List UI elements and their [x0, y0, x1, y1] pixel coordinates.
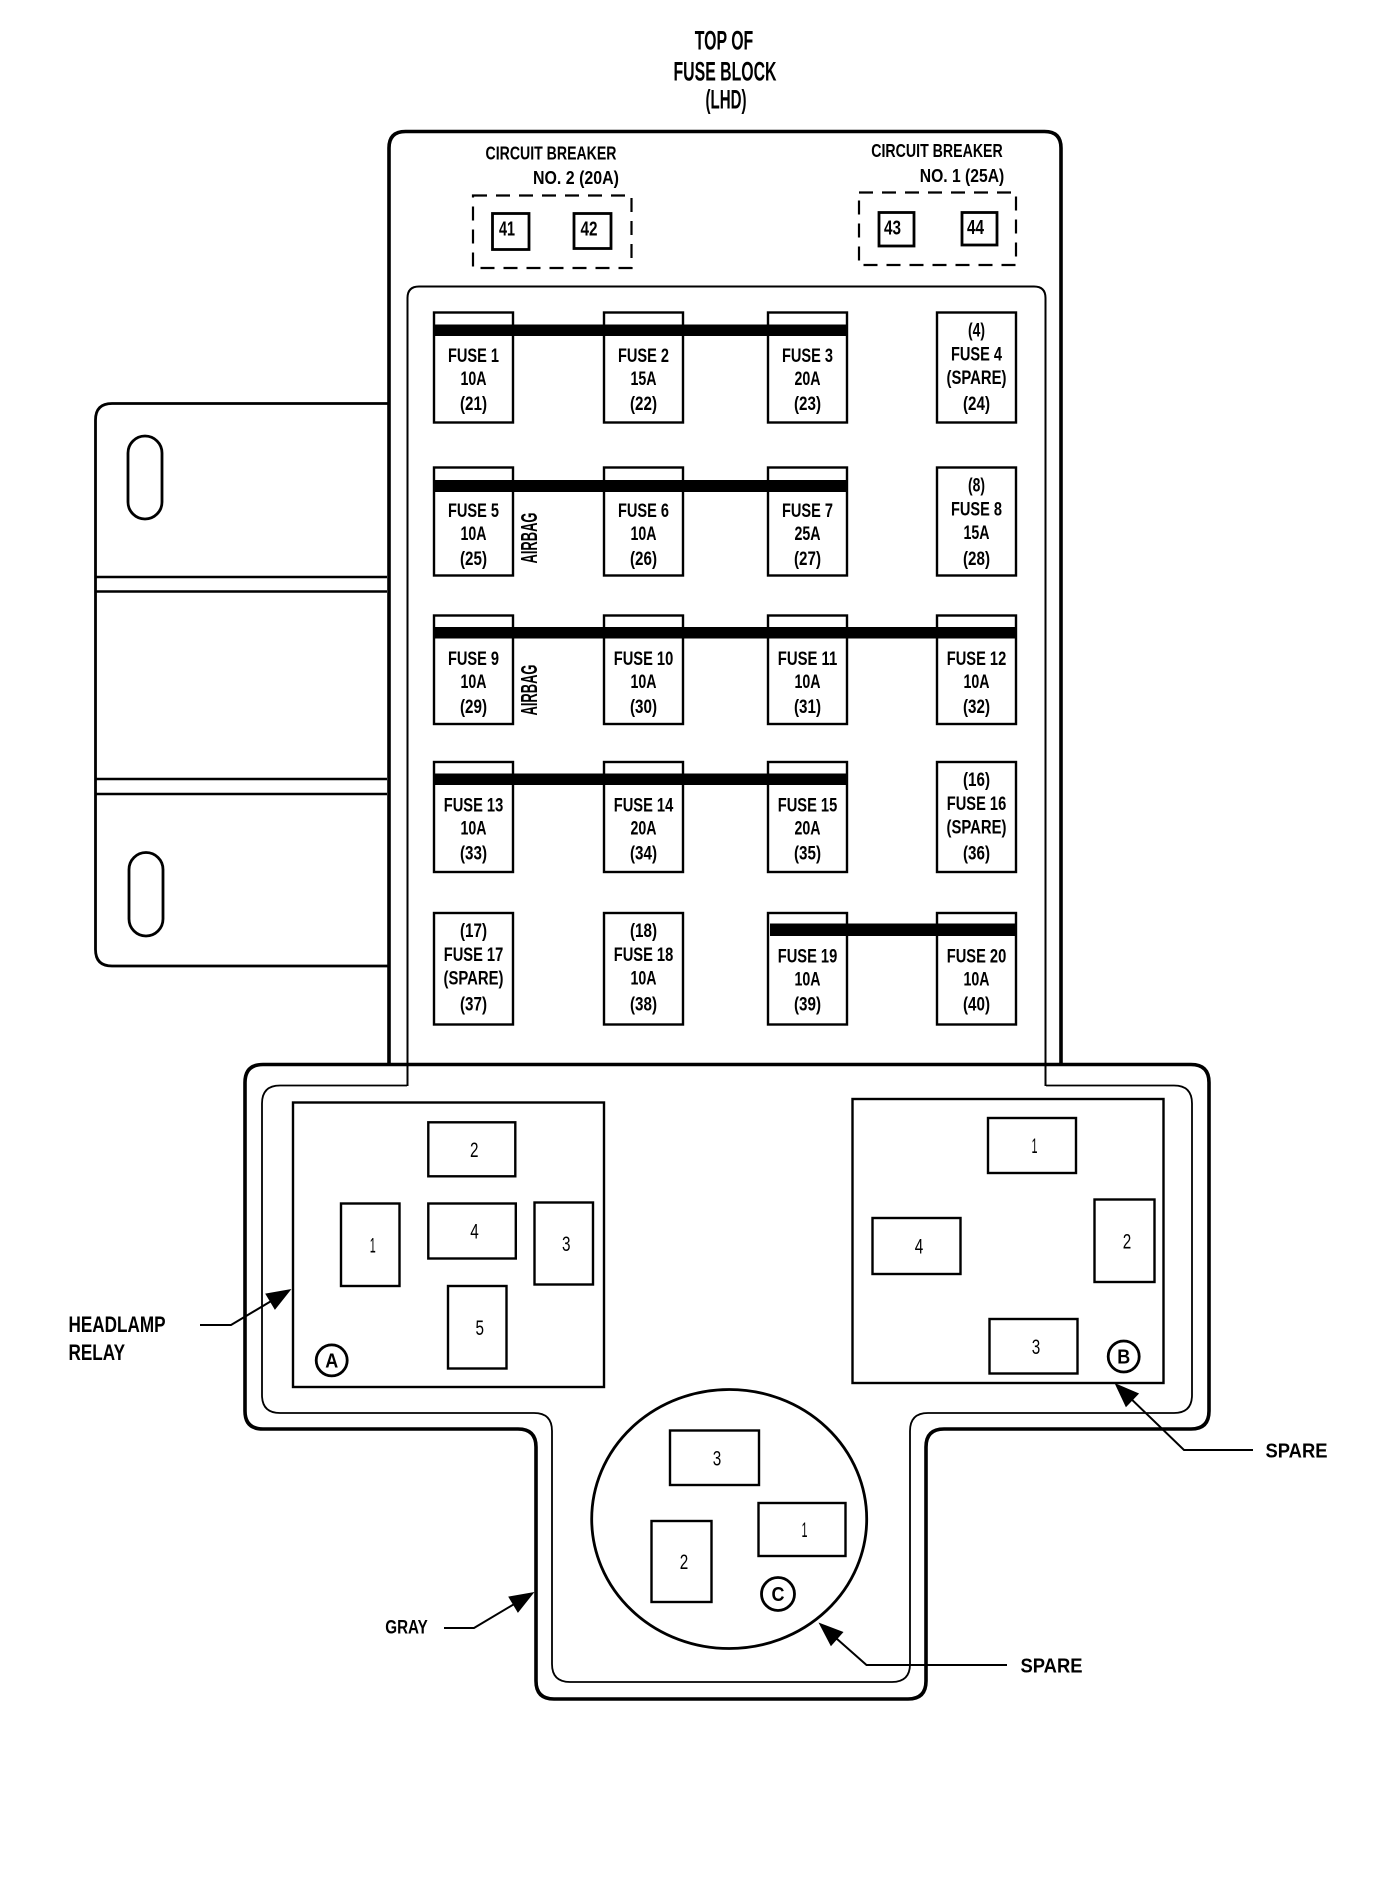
svg-text:NO. 1 (25A): NO. 1 (25A) — [920, 166, 1005, 186]
svg-text:CIRCUIT BREAKER: CIRCUIT BREAKER — [871, 141, 1003, 161]
svg-text:CIRCUIT BREAKER: CIRCUIT BREAKER — [486, 144, 617, 164]
svg-text:42: 42 — [581, 219, 598, 241]
svg-text:(26): (26) — [630, 549, 657, 570]
svg-text:(16): (16) — [963, 770, 990, 791]
svg-text:FUSE 4: FUSE 4 — [951, 345, 1002, 366]
svg-text:HEADLAMP: HEADLAMP — [69, 1312, 166, 1337]
svg-text:1: 1 — [1032, 1135, 1038, 1158]
svg-text:GRAY: GRAY — [385, 1617, 428, 1639]
svg-text:FUSE 16: FUSE 16 — [947, 794, 1007, 815]
svg-text:FUSE 1: FUSE 1 — [448, 346, 499, 367]
svg-text:FUSE 17: FUSE 17 — [444, 945, 504, 966]
svg-text:FUSE 8: FUSE 8 — [951, 500, 1002, 521]
svg-text:2: 2 — [470, 1139, 479, 1162]
svg-text:(23): (23) — [794, 394, 821, 415]
svg-text:10A: 10A — [795, 672, 821, 693]
svg-text:25A: 25A — [795, 524, 821, 545]
svg-text:(SPARE): (SPARE) — [444, 969, 504, 990]
svg-text:10A: 10A — [461, 369, 487, 390]
svg-text:SPARE: SPARE — [1266, 1441, 1328, 1463]
svg-text:(40): (40) — [963, 995, 990, 1016]
svg-text:3: 3 — [713, 1447, 722, 1470]
svg-text:(35): (35) — [794, 844, 821, 865]
svg-text:A: A — [325, 1350, 338, 1372]
svg-text:44: 44 — [967, 217, 985, 239]
svg-text:(8): (8) — [968, 476, 985, 497]
svg-text:43: 43 — [884, 218, 901, 240]
svg-text:(18): (18) — [630, 921, 657, 942]
svg-text:FUSE 2: FUSE 2 — [618, 346, 669, 367]
svg-text:10A: 10A — [964, 970, 990, 991]
svg-text:FUSE 5: FUSE 5 — [448, 501, 499, 522]
svg-text:3: 3 — [562, 1233, 571, 1256]
svg-text:3: 3 — [1032, 1336, 1041, 1359]
svg-text:(31): (31) — [794, 697, 821, 718]
svg-text:(17): (17) — [460, 921, 487, 942]
svg-text:15A: 15A — [964, 523, 990, 544]
svg-text:(SPARE): (SPARE) — [947, 818, 1007, 839]
svg-text:(32): (32) — [963, 697, 990, 718]
svg-text:NO. 2 (20A): NO. 2 (20A) — [533, 168, 619, 188]
svg-text:(LHD): (LHD) — [706, 85, 747, 115]
svg-text:(21): (21) — [460, 394, 487, 415]
svg-text:FUSE 15: FUSE 15 — [778, 796, 838, 817]
svg-text:15A: 15A — [631, 369, 657, 390]
svg-text:B: B — [1117, 1347, 1130, 1369]
svg-text:(27): (27) — [794, 549, 821, 570]
svg-text:FUSE 6: FUSE 6 — [618, 501, 669, 522]
svg-text:(28): (28) — [963, 549, 990, 570]
svg-text:FUSE 11: FUSE 11 — [778, 649, 838, 670]
svg-text:(24): (24) — [963, 394, 990, 415]
svg-text:FUSE 18: FUSE 18 — [614, 945, 674, 966]
svg-text:(34): (34) — [630, 844, 657, 865]
svg-text:TOP OF: TOP OF — [695, 26, 754, 56]
svg-text:10A: 10A — [964, 672, 990, 693]
svg-text:SPARE: SPARE — [1021, 1656, 1083, 1678]
svg-text:10A: 10A — [631, 524, 657, 545]
svg-text:10A: 10A — [795, 970, 821, 991]
svg-text:1: 1 — [802, 1519, 808, 1542]
svg-text:(37): (37) — [460, 995, 487, 1016]
svg-text:10A: 10A — [461, 819, 487, 840]
svg-text:20A: 20A — [795, 819, 821, 840]
svg-text:FUSE 13: FUSE 13 — [444, 796, 504, 817]
svg-text:20A: 20A — [795, 369, 821, 390]
svg-text:FUSE 19: FUSE 19 — [778, 947, 838, 968]
svg-text:AIRBAG: AIRBAG — [516, 665, 542, 716]
svg-text:5: 5 — [476, 1317, 485, 1340]
svg-text:4: 4 — [470, 1221, 479, 1244]
svg-text:2: 2 — [1123, 1230, 1132, 1253]
svg-text:FUSE 14: FUSE 14 — [614, 796, 674, 817]
svg-text:FUSE 20: FUSE 20 — [947, 947, 1007, 968]
svg-text:C: C — [772, 1584, 785, 1606]
svg-text:(25): (25) — [460, 549, 487, 570]
svg-text:(SPARE): (SPARE) — [947, 368, 1007, 389]
svg-text:10A: 10A — [631, 672, 657, 693]
svg-text:(22): (22) — [630, 394, 657, 415]
svg-text:4: 4 — [915, 1236, 924, 1259]
svg-text:FUSE 9: FUSE 9 — [448, 649, 499, 670]
svg-text:(36): (36) — [963, 844, 990, 865]
svg-text:(30): (30) — [630, 697, 657, 718]
svg-text:RELAY: RELAY — [69, 1340, 126, 1365]
svg-text:(33): (33) — [460, 844, 487, 865]
svg-text:FUSE 10: FUSE 10 — [614, 649, 674, 670]
svg-text:(38): (38) — [630, 995, 657, 1016]
svg-text:(4): (4) — [968, 321, 985, 342]
svg-text:(29): (29) — [460, 697, 487, 718]
svg-text:2: 2 — [680, 1551, 689, 1574]
svg-text:1: 1 — [370, 1234, 376, 1257]
svg-text:AIRBAG: AIRBAG — [516, 513, 542, 564]
svg-text:41: 41 — [499, 219, 515, 241]
svg-text:FUSE 3: FUSE 3 — [782, 346, 833, 367]
svg-text:FUSE 7: FUSE 7 — [782, 501, 833, 522]
svg-text:(39): (39) — [794, 995, 821, 1016]
svg-text:10A: 10A — [461, 672, 487, 693]
svg-text:10A: 10A — [461, 524, 487, 545]
svg-text:10A: 10A — [631, 969, 657, 990]
svg-text:FUSE 12: FUSE 12 — [947, 649, 1007, 670]
svg-text:20A: 20A — [631, 819, 657, 840]
svg-text:FUSE BLOCK: FUSE BLOCK — [674, 57, 777, 87]
